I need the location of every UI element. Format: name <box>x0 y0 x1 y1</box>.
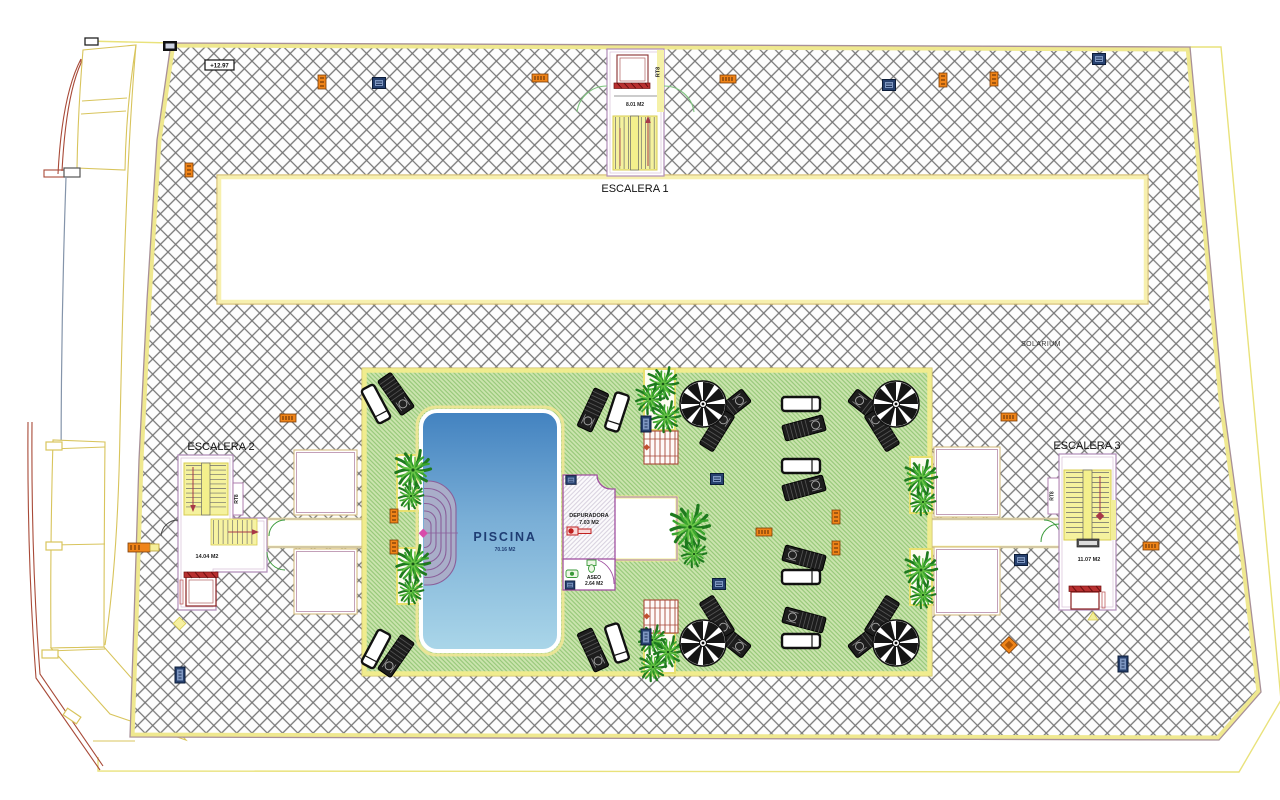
svg-text:8.01 M2: 8.01 M2 <box>626 102 644 108</box>
svg-text:14.04 M2: 14.04 M2 <box>196 554 219 560</box>
svg-text:2.64 M2: 2.64 M2 <box>585 581 603 587</box>
svg-text:ESCALERA 2: ESCALERA 2 <box>187 441 254 453</box>
svg-text:ESCALERA 3: ESCALERA 3 <box>1053 440 1120 452</box>
svg-text:+12.97: +12.97 <box>210 64 229 70</box>
svg-text:RT8: RT8 <box>1050 491 1056 501</box>
svg-text:RT8: RT8 <box>656 67 662 77</box>
svg-text:RT8: RT8 <box>234 494 240 504</box>
svg-text:SOLARIUM: SOLARIUM <box>1021 341 1061 348</box>
svg-text:7.03 M2: 7.03 M2 <box>579 520 599 526</box>
svg-text:70.16 M2: 70.16 M2 <box>495 547 516 553</box>
svg-text:PISCINA: PISCINA <box>473 530 536 544</box>
svg-text:DEPURADORA: DEPURADORA <box>569 513 608 519</box>
svg-text:ESCALERA 1: ESCALERA 1 <box>601 183 668 195</box>
svg-text:11.07 M2: 11.07 M2 <box>1078 557 1101 563</box>
